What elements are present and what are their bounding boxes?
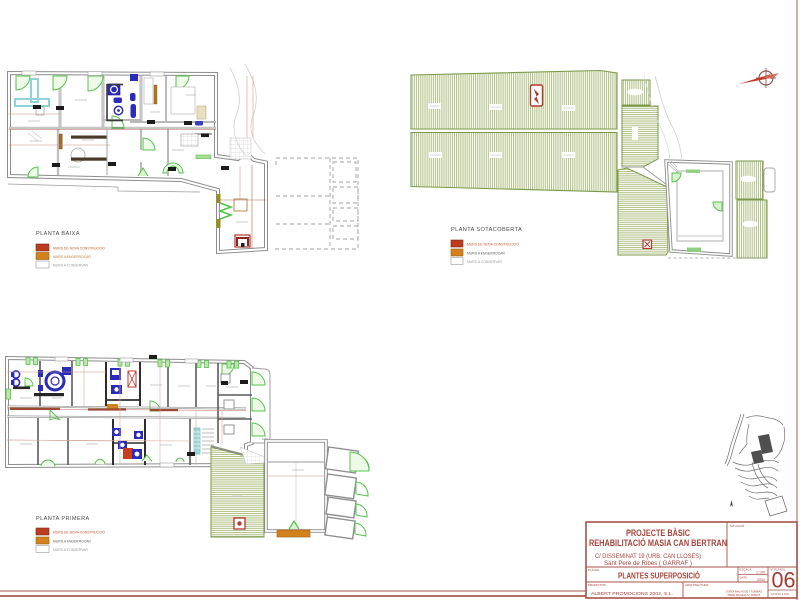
svg-text:Sant Pere de Ribes ( GARRAF ): Sant Pere de Ribes ( GARRAF ) — [604, 561, 692, 567]
svg-text:PLÀNOL: PLÀNOL — [588, 568, 600, 572]
svg-text:REHABILITACIÓ MASIA CAN BERTRA: REHABILITACIÓ MASIA CAN BERTRAN — [589, 537, 727, 549]
svg-text:ALBERT PROMOCIONS 2002, S.L.: ALBERT PROMOCIONS 2002, S.L. — [591, 591, 673, 597]
svg-text:MURS DE NOVA CONSTRUCCIÓ: MURS DE NOVA CONSTRUCCIÓ — [467, 242, 519, 247]
svg-text:PLANTA PRIMERA: PLANTA PRIMERA — [36, 516, 90, 522]
svg-text:PERE BAGELLS I DIBUIT: PERE BAGELLS I DIBUIT — [728, 593, 761, 597]
svg-text:06: 06 — [772, 568, 796, 593]
svg-text:ARQUITECTURA: ARQUITECTURA — [685, 583, 709, 587]
svg-text:2002: 2002 — [757, 578, 765, 582]
svg-text:MURS A ENDERROCAR: MURS A ENDERROCAR — [467, 252, 505, 256]
svg-text:SITUACIÓ: SITUACIÓ — [730, 523, 745, 528]
svg-text:MURS A CONSERVAR: MURS A CONSERVAR — [467, 260, 502, 264]
svg-text:MURS A CONSERVAR: MURS A CONSERVAR — [53, 264, 88, 268]
svg-text:1:100: 1:100 — [756, 571, 765, 575]
svg-text:MURS DE NOVA CONSTRUCCIÓ: MURS DE NOVA CONSTRUCCIÓ — [53, 530, 105, 535]
svg-text:ESCALA: ESCALA — [740, 568, 752, 572]
svg-text:MURS A CONSERVAR: MURS A CONSERVAR — [53, 548, 88, 552]
svg-text:PROMOTOR: PROMOTOR — [588, 583, 606, 587]
svg-text:MURS A ENDERROCAR: MURS A ENDERROCAR — [53, 255, 91, 259]
svg-text:sala: sala — [262, 437, 268, 441]
svg-text:MURS A ENDERROCAR: MURS A ENDERROCAR — [53, 540, 91, 544]
svg-text:C/ DISSEMINAT 19 (URB. CAN LLO: C/ DISSEMINAT 19 (URB. CAN LLOSES) — [595, 554, 701, 560]
svg-text:MURS DE NOVA CONSTRUCCIÓ: MURS DE NOVA CONSTRUCCIÓ — [53, 246, 105, 251]
svg-text:DATA: DATA — [740, 576, 748, 580]
svg-text:PLANTA SOTACOBERTA: PLANTA SOTACOBERTA — [451, 227, 522, 233]
svg-text:PLANTA BAIXA: PLANTA BAIXA — [36, 231, 80, 237]
svg-text:PLANTES SUPERPOSICIÓ: PLANTES SUPERPOSICIÓ — [618, 572, 700, 581]
svg-text:A3 ESC 1:100: A3 ESC 1:100 — [771, 592, 789, 596]
